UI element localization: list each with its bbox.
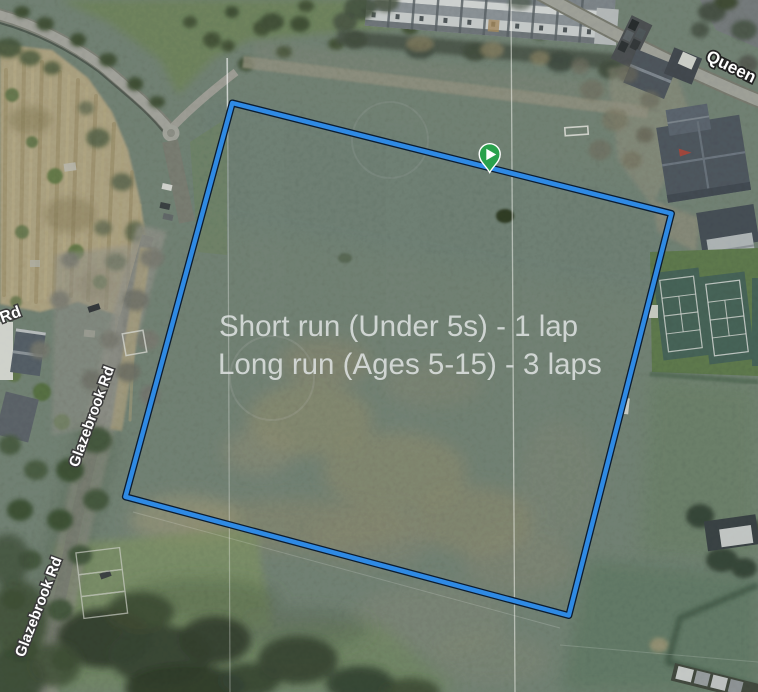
svg-text:Long run (Ages 5-15) - 3 laps: Long run (Ages 5-15) - 3 laps [218, 348, 602, 381]
svg-text:Short run (Under 5s) - 1 lap: Short run (Under 5s) - 1 lap [219, 310, 578, 343]
